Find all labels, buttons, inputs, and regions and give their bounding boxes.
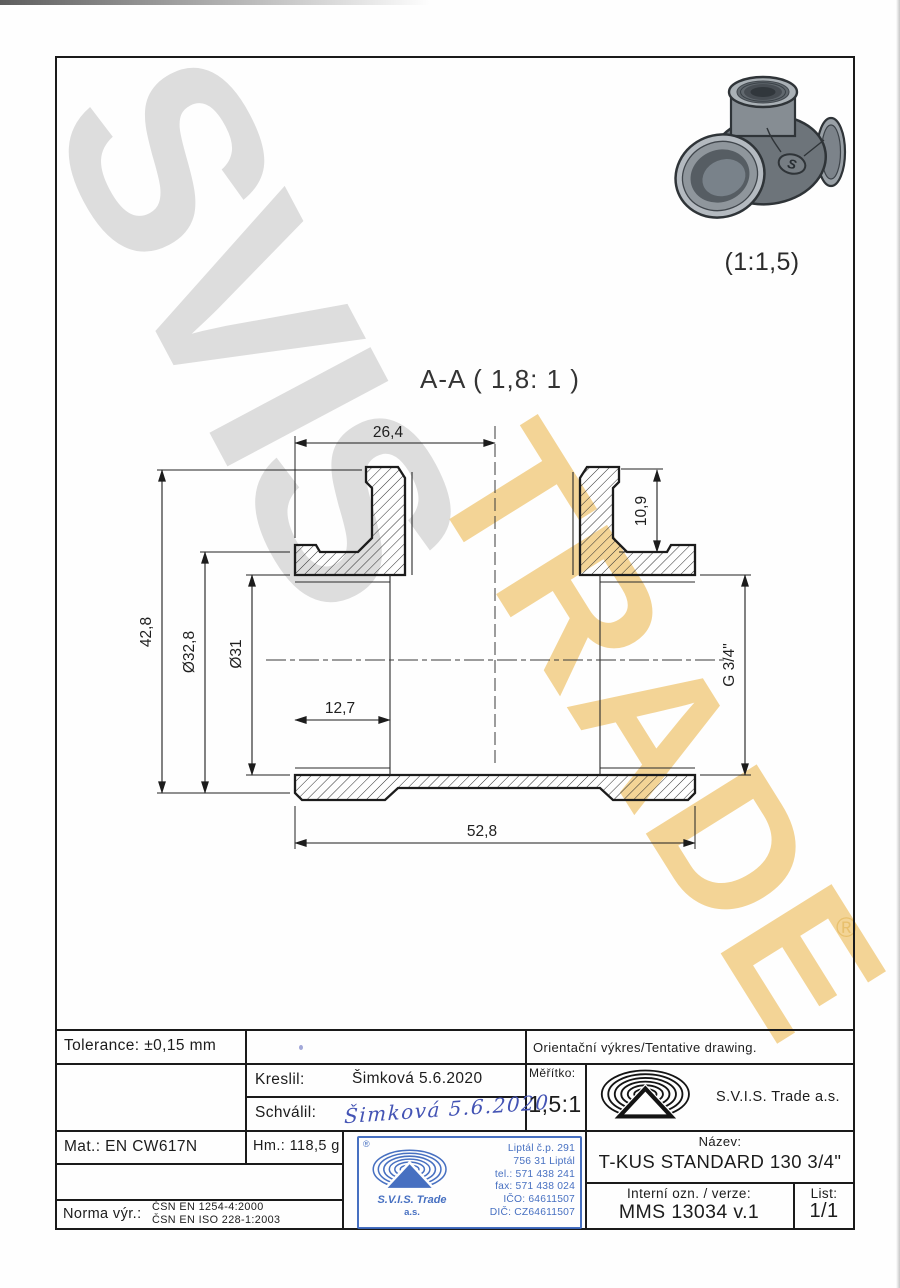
kreslil-value: Šimková 5.6.2020 xyxy=(352,1070,482,1088)
stamp-tel: tel.: 571 438 241 xyxy=(461,1169,575,1182)
dim-outer-dia: Ø32,8 xyxy=(181,631,198,673)
meritko-label: Měřítko: xyxy=(529,1066,576,1080)
norma-label: Norma výr.: xyxy=(63,1206,142,1222)
company-name: S.V.I.S. Trade a.s. xyxy=(703,1089,853,1105)
nazev-value: T-KUS STANDARD 130 3/4" xyxy=(585,1151,855,1173)
stamp-dic: DIČ: CZ64611507 xyxy=(461,1207,575,1220)
stamp-ico: IČO: 64611507 xyxy=(461,1194,575,1207)
dim-branch-depth: 10,9 xyxy=(633,496,650,526)
titleblock-line xyxy=(342,1130,344,1230)
titleblock-line xyxy=(55,1063,855,1065)
stamp-company-suffix: a.s. xyxy=(361,1207,463,1218)
dim-thread-depth: 12,7 xyxy=(325,700,355,717)
material-label: Mat.: xyxy=(64,1138,100,1155)
wall-bottom xyxy=(295,775,695,800)
material-cell: Mat.: EN CW617N xyxy=(64,1138,198,1156)
meritko-value: 1,5:1 xyxy=(525,1091,585,1118)
section-view-drawing: 26,4 10,9 42,8 Ø32,8 Ø31 12,7 G 3/4" 52,… xyxy=(130,412,770,882)
dim-overall-length: 52,8 xyxy=(467,823,497,840)
material-value: EN CW617N xyxy=(105,1138,197,1155)
stamp-address1: Liptál č.p. 291 xyxy=(461,1143,575,1156)
titleblock-line xyxy=(55,1130,855,1132)
tolerance-label: Tolerance: xyxy=(64,1037,140,1054)
company-stamp: ® S.V.I.S. Trade a.s. Liptál č.p. 291 75… xyxy=(357,1136,582,1229)
scan-artifact-top xyxy=(0,0,430,5)
section-view-title: A-A ( 1,8: 1 ) xyxy=(340,364,660,395)
list-value: 1/1 xyxy=(793,1200,855,1223)
stamp-company-name: S.V.I.S. Trade xyxy=(361,1194,463,1206)
dim-thread-size: G 3/4" xyxy=(721,643,738,686)
tolerance-value: ±0,15 mm xyxy=(144,1037,216,1054)
product-photo-tee-fitting: S xyxy=(668,64,856,240)
titleblock-line xyxy=(55,1029,855,1031)
dim-bore-dia: Ø31 xyxy=(228,639,245,668)
drawing-sheet: SVIS TRADE ® S (1:1,5) A-A ( 1,8: 1 ) xyxy=(0,0,900,1288)
mass-cell: Hm.: 118,5 g xyxy=(253,1138,340,1154)
ink-dot xyxy=(299,1045,303,1050)
photo-top-port-hole xyxy=(751,87,776,97)
nazev-label: Název: xyxy=(585,1134,855,1149)
list-label: List: xyxy=(793,1186,855,1201)
company-logo xyxy=(599,1069,701,1123)
stamp-registered-icon: ® xyxy=(363,1139,370,1149)
stamp-logo xyxy=(369,1149,457,1193)
mass-value: 118,5 g xyxy=(290,1138,340,1154)
mass-label: Hm.: xyxy=(253,1138,285,1154)
titleblock-line xyxy=(585,1182,855,1184)
stamp-address2: 756 31 Liptál xyxy=(461,1156,575,1169)
tolerance-cell: Tolerance: ±0,15 mm xyxy=(64,1037,216,1055)
photo-scale-label: (1:1,5) xyxy=(668,248,856,277)
dim-overall-height: 42,8 xyxy=(138,617,155,647)
norma-line1: ČSN EN 1254-4:2000 xyxy=(152,1201,264,1213)
kreslil-label: Kreslil: xyxy=(255,1071,305,1089)
schvalil-label: Schválil: xyxy=(255,1104,316,1122)
interni-label: Interní ozn. / verze: xyxy=(585,1186,793,1201)
dim-top-width: 26,4 xyxy=(373,424,404,441)
titleblock-line xyxy=(55,1163,344,1165)
norma-line2: ČSN EN ISO 228-1:2003 xyxy=(152,1214,280,1226)
tentative-drawing-note: Orientační výkres/Tentative drawing. xyxy=(533,1040,757,1055)
stamp-fax: fax: 571 438 024 xyxy=(461,1181,575,1194)
stamp-address-block: Liptál č.p. 291 756 31 Liptál tel.: 571 … xyxy=(461,1143,575,1220)
wall-upper-left xyxy=(295,467,405,575)
scan-artifact-right xyxy=(896,0,900,1288)
interni-value: MMS 13034 v.1 xyxy=(585,1201,793,1224)
titleblock-line xyxy=(245,1029,247,1163)
